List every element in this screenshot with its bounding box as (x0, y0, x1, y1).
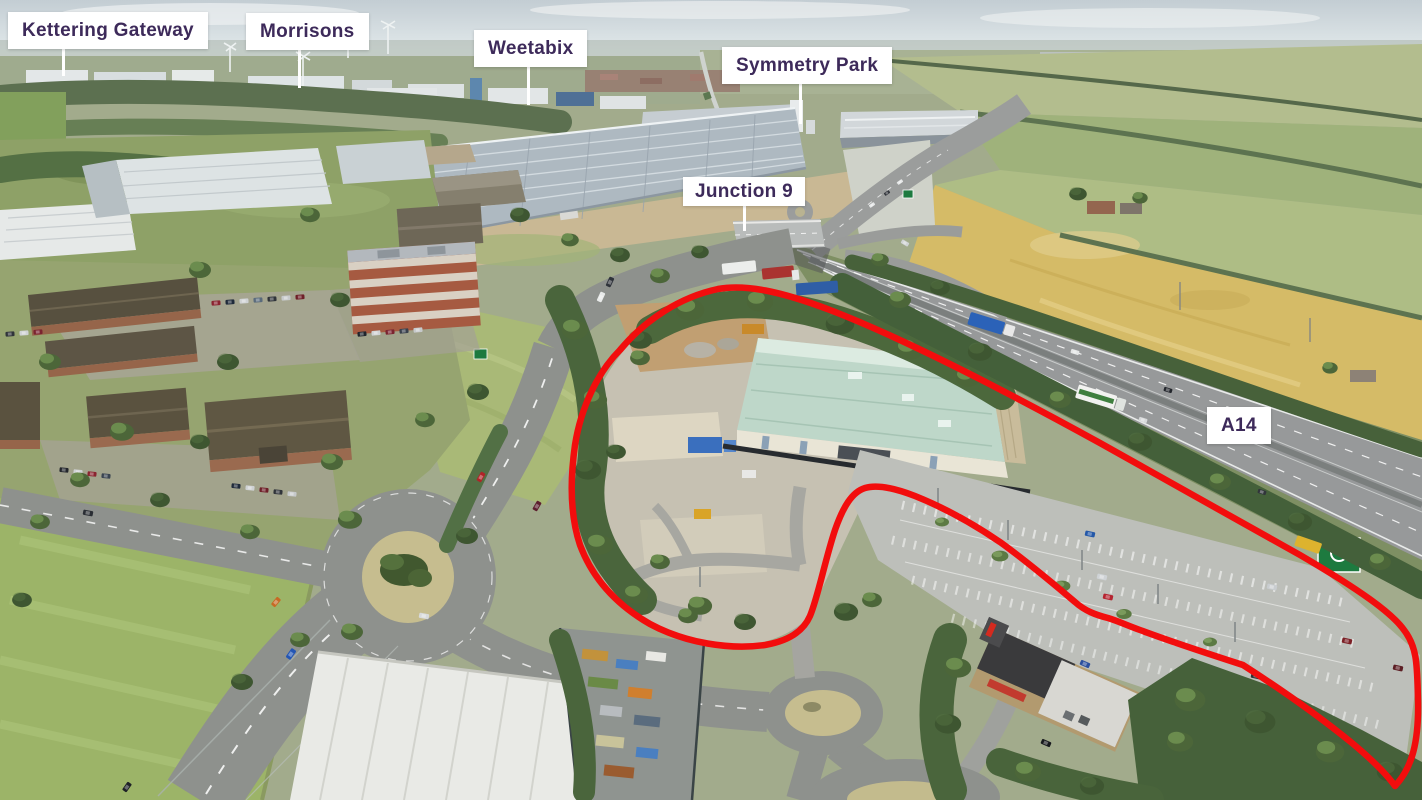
brick-office (86, 388, 190, 449)
leader-symmetry-park (799, 81, 802, 124)
label-kettering-gateway: Kettering Gateway (8, 12, 208, 49)
label-junction-9: Junction 9 (683, 177, 805, 206)
red-brick-office (347, 242, 481, 335)
leader-weetabix (527, 66, 530, 105)
skip (742, 324, 764, 334)
label-weetabix: Weetabix (474, 30, 587, 67)
aerial-scene (0, 0, 1422, 800)
excavator (694, 509, 711, 519)
label-a14: A14 (1207, 407, 1271, 444)
leader-morrisons (298, 46, 301, 88)
roundabout-east (763, 671, 883, 755)
leader-junction-9 (743, 202, 746, 231)
label-symmetry-park: Symmetry Park (722, 47, 892, 84)
label-morrisons: Morrisons (246, 13, 369, 50)
leader-kettering-gateway (62, 49, 65, 76)
aerial-site-photo: Kettering Gateway Morrisons Weetabix Sym… (0, 0, 1422, 800)
site-cabin (688, 437, 722, 453)
